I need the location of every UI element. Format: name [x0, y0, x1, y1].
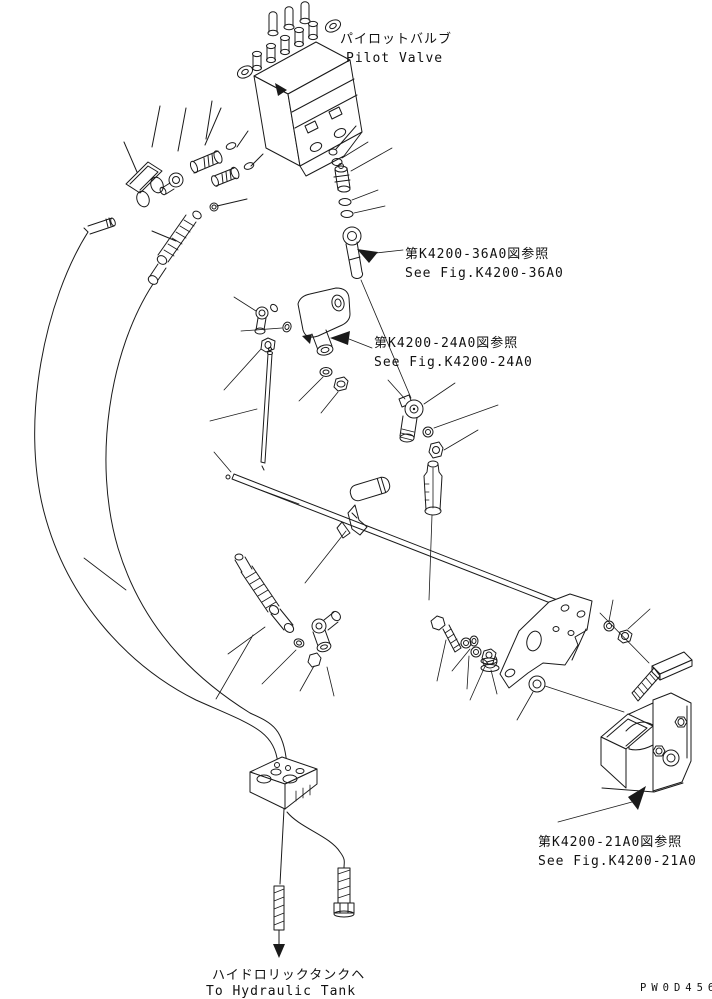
braided-hose-lower	[216, 554, 342, 699]
pilot-valve	[235, 2, 362, 176]
leader-fig-24a0	[349, 339, 372, 348]
braided-hose-upper	[147, 210, 203, 287]
bracket-21a0	[600, 613, 692, 792]
pilot-line-1	[35, 232, 278, 764]
label-fig-36a0-en: See Fig.K4200-36A0	[405, 266, 564, 281]
mounting-plate	[452, 594, 650, 720]
drawing-code: PW0D456	[640, 982, 712, 994]
hydraulic-piping-diagram: パイロットバルブ Pilot Valve 第K4200-36A0図参照 See …	[0, 0, 712, 999]
label-fig-24a0-jp: 第K4200-24A0図参照	[374, 335, 518, 351]
tube-curves	[35, 218, 287, 766]
banjo-fitting	[388, 380, 498, 458]
pin-part	[424, 461, 442, 600]
tee-fitting-24a0	[210, 288, 350, 470]
tank-line	[274, 809, 354, 944]
pilot-line-2	[106, 284, 287, 766]
arrow-to-tank	[273, 944, 285, 958]
label-fig-36a0-jp: 第K4200-36A0図参照	[405, 246, 549, 262]
rod-sleeve	[349, 476, 392, 503]
label-pilot-valve-en: Pilot Valve	[346, 51, 443, 66]
label-fig-24a0-en: See Fig.K4200-24A0	[374, 355, 533, 370]
parts-diagram-page: パイロットバルブ Pilot Valve 第K4200-36A0図参照 See …	[0, 0, 712, 999]
leader-fig-36a0	[376, 250, 403, 253]
manifold-block	[250, 757, 317, 809]
long-rod	[214, 452, 560, 606]
label-tank-en: To Hydraulic Tank	[206, 984, 356, 999]
label-pilot-valve-jp: パイロットバルブ	[340, 31, 452, 47]
arrow-to-fig-21a0	[628, 786, 646, 810]
label-fig-21a0-jp: 第K4200-21A0図参照	[538, 834, 682, 850]
label-fig-21a0-en: See Fig.K4200-21A0	[538, 854, 697, 869]
arrow-to-fig-24a0	[330, 331, 350, 345]
label-tank-jp: ハイドロリックタンクヘ	[212, 968, 365, 983]
fitting-cluster	[126, 141, 255, 211]
arrow-tip-fig-24a0	[302, 334, 312, 344]
leader-fig-21a0	[558, 802, 632, 822]
